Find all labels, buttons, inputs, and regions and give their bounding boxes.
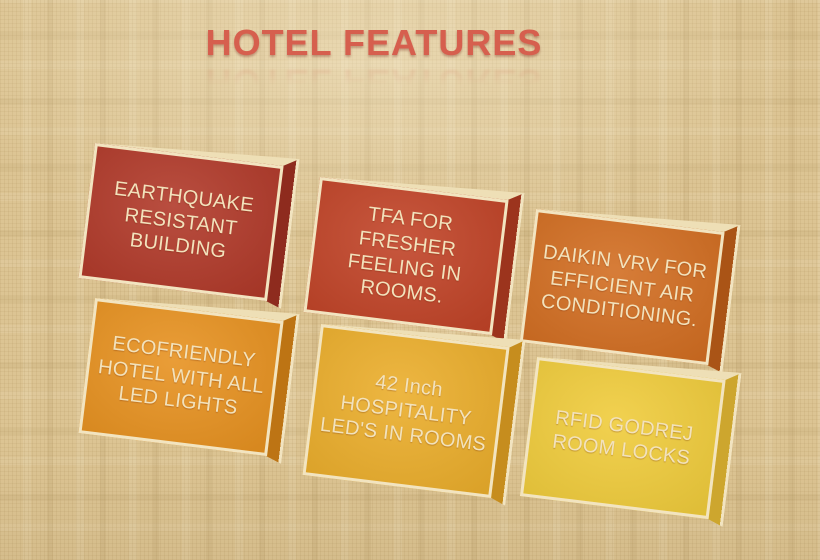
box-front-face: EARTHQUAKE RESISTANT BUILDING	[78, 143, 283, 301]
feature-box-tfa-fresher-feeling: TFA FOR FRESHER FEELING IN ROOMS.	[303, 177, 508, 335]
feature-box-daikin-vrv-air-conditioning: DAIKIN VRV FOR EFFICIENT AIR CONDITIONIN…	[520, 209, 725, 365]
box-front-face: 42 Inch HOSPITALITY LED'S IN ROOMS	[302, 324, 509, 498]
box-front-face: TFA FOR FRESHER FEELING IN ROOMS.	[303, 177, 508, 335]
box-front-face: RFID GODREJ ROOM LOCKS	[520, 357, 726, 519]
feature-box-rfid-room-locks: RFID GODREJ ROOM LOCKS	[520, 357, 726, 519]
title-reflection-clip: HOTEL FEATURES	[74, 63, 674, 97]
feature-label: DAIKIN VRV FOR EFFICIENT AIR CONDITIONIN…	[532, 238, 713, 336]
feature-label: EARTHQUAKE RESISTANT BUILDING	[103, 175, 260, 270]
feature-box-ecofriendly-led-lights: ECOFRIENDLY HOTEL WITH ALL LED LIGHTS	[78, 298, 283, 456]
feature-box-hospitality-led-tv: 42 Inch HOSPITALITY LED'S IN ROOMS	[302, 324, 509, 498]
feature-label: 42 Inch HOSPITALITY LED'S IN ROOMS	[315, 362, 498, 460]
box-front-face: DAIKIN VRV FOR EFFICIENT AIR CONDITIONIN…	[520, 209, 725, 365]
title-block: HOTEL FEATURES HOTEL FEATURES	[74, 24, 674, 97]
presentation-slide: HOTEL FEATURES HOTEL FEATURES EARTHQUAKE…	[0, 0, 820, 560]
title-reflection: HOTEL FEATURES	[74, 63, 674, 97]
page-title: HOTEL FEATURES	[74, 24, 674, 62]
feature-label: ECOFRIENDLY HOTEL WITH ALL LED LIGHTS	[90, 328, 273, 426]
box-front-face: ECOFRIENDLY HOTEL WITH ALL LED LIGHTS	[78, 298, 283, 456]
feature-label: TFA FOR FRESHER FEELING IN ROOMS.	[339, 198, 473, 314]
feature-label: RFID GODREJ ROOM LOCKS	[547, 403, 699, 473]
feature-box-earthquake-resistant-building: EARTHQUAKE RESISTANT BUILDING	[78, 143, 283, 301]
